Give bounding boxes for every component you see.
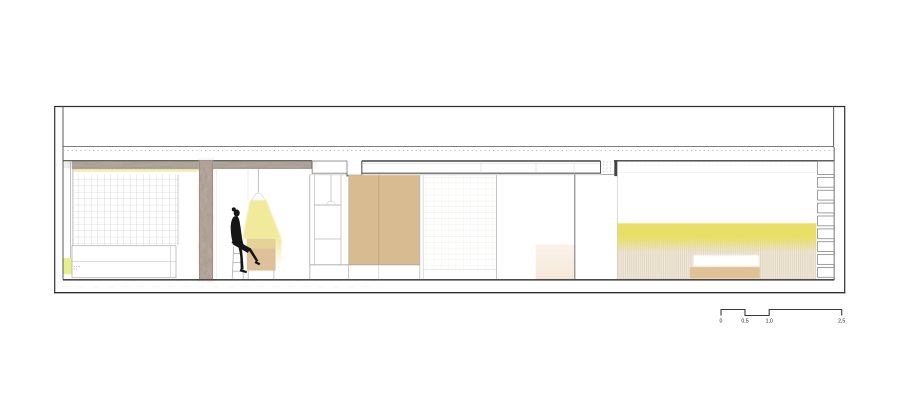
svg-text:0: 0: [720, 319, 723, 325]
svg-text:2,5: 2,5: [838, 319, 845, 325]
svg-text:0,5: 0,5: [741, 319, 748, 325]
svg-text:1,0: 1,0: [766, 319, 773, 325]
